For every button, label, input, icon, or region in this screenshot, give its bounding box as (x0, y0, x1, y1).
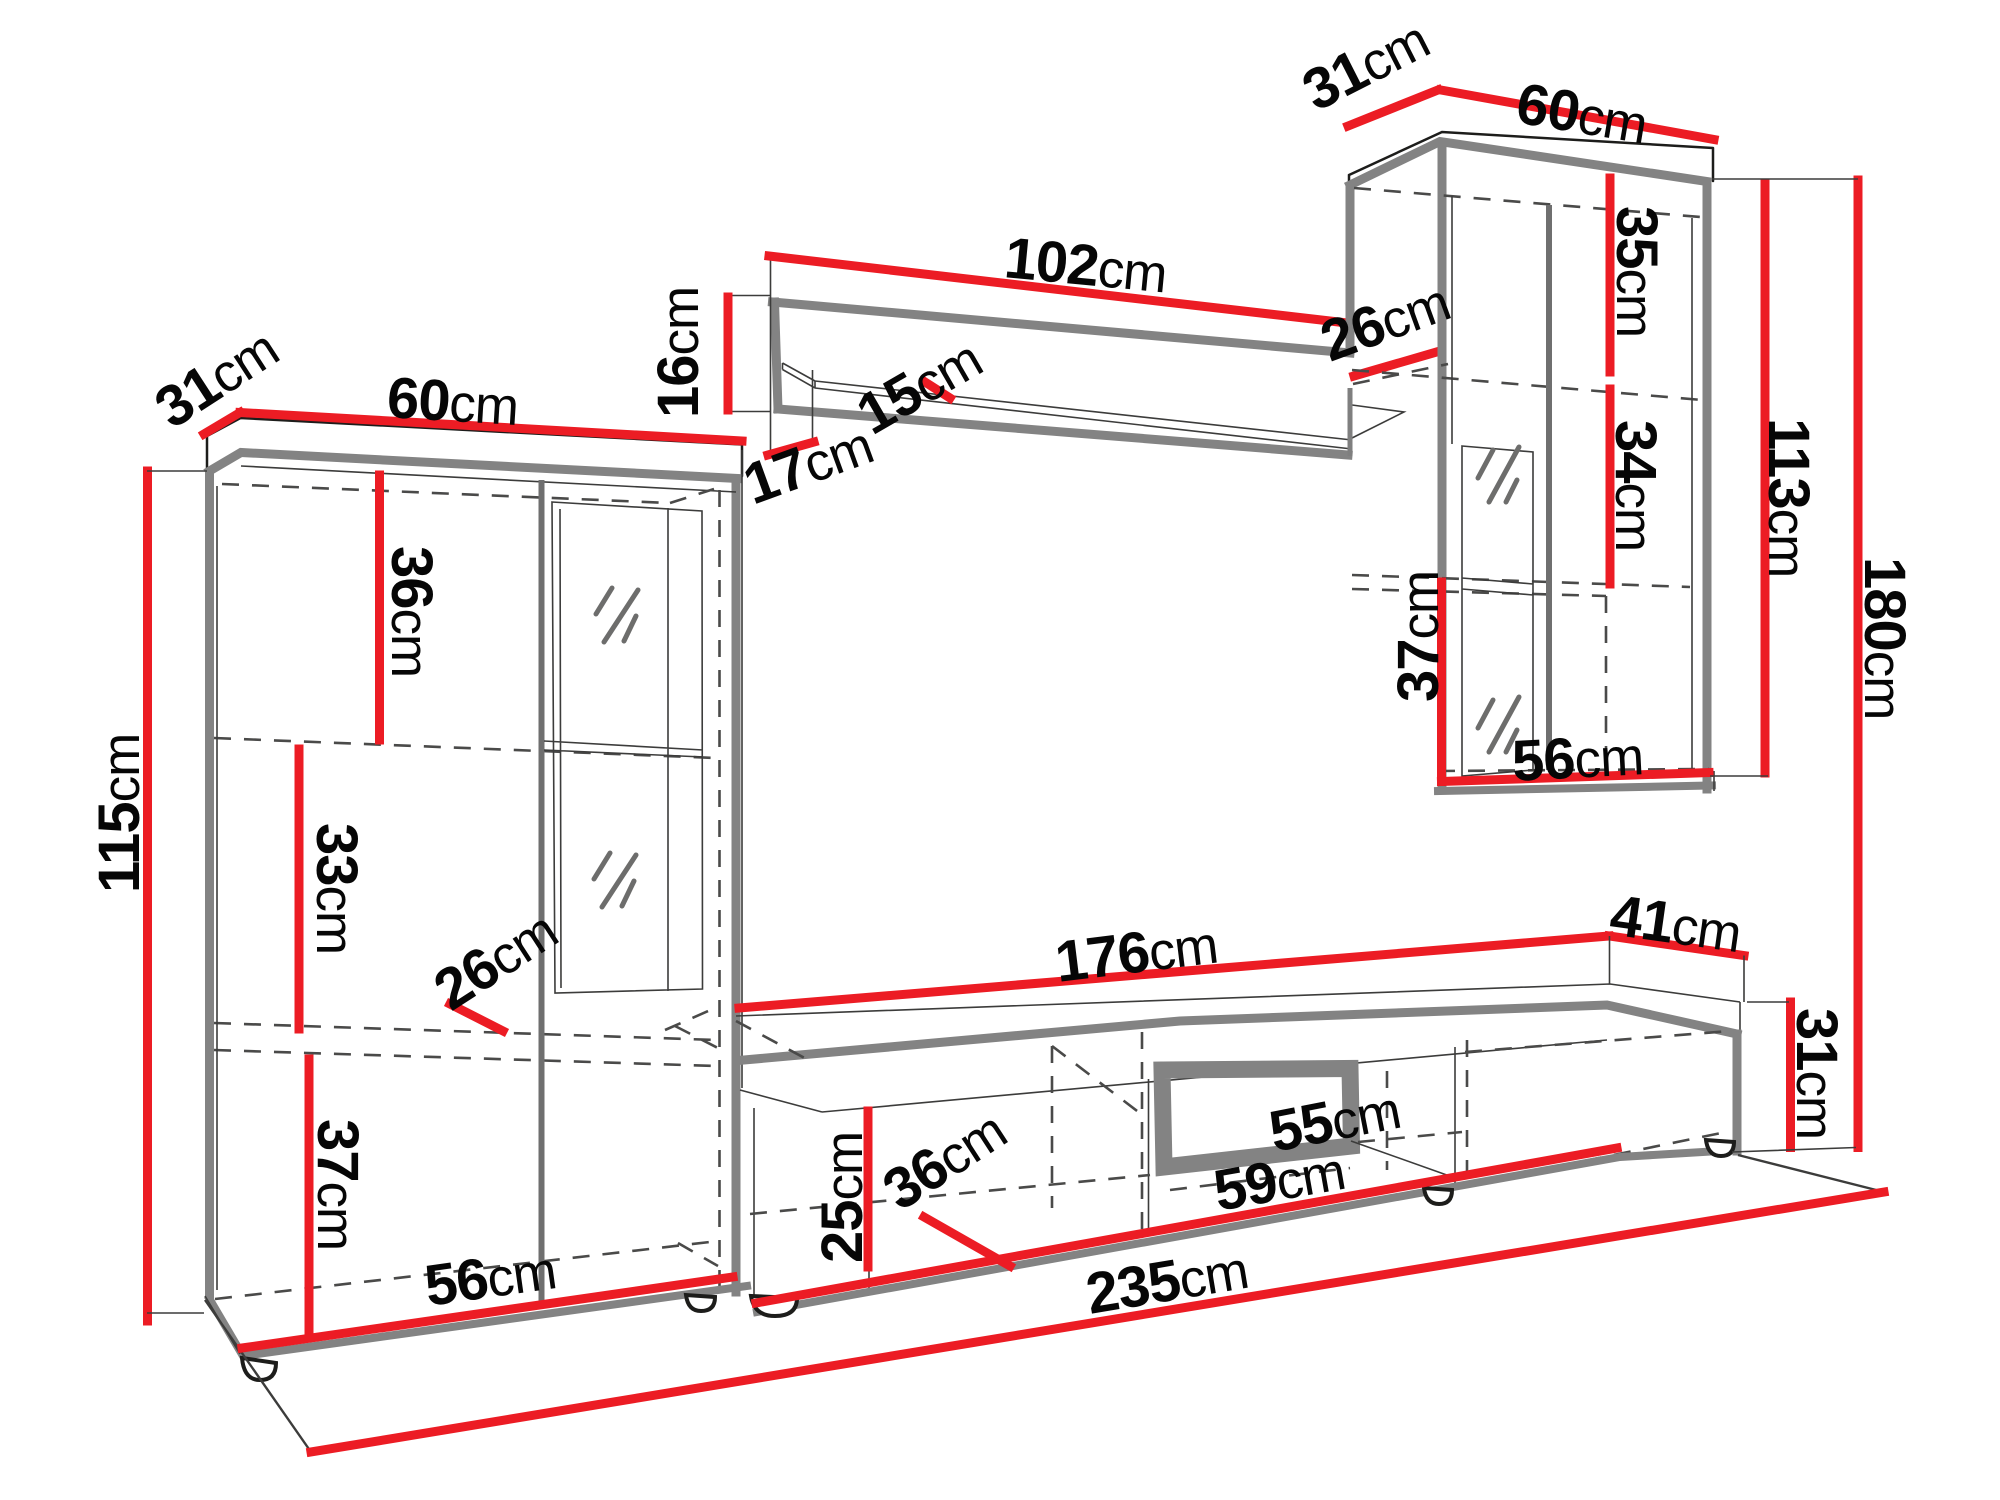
svg-text:115cm: 115cm (87, 734, 152, 893)
svg-text:31cm: 31cm (1784, 1008, 1849, 1139)
svg-text:35cm: 35cm (1604, 206, 1669, 337)
svg-text:56cm: 56cm (1510, 722, 1644, 794)
svg-text:36cm: 36cm (379, 546, 444, 677)
svg-text:37cm: 37cm (1386, 571, 1451, 702)
svg-text:180cm: 180cm (1852, 557, 1917, 719)
svg-text:25cm: 25cm (810, 1132, 875, 1263)
svg-text:33cm: 33cm (304, 823, 369, 954)
svg-text:34cm: 34cm (1603, 420, 1668, 551)
svg-text:16cm: 16cm (646, 287, 711, 418)
svg-text:37cm: 37cm (305, 1119, 370, 1250)
svg-text:60cm: 60cm (385, 365, 520, 438)
svg-text:113cm: 113cm (1756, 418, 1821, 577)
